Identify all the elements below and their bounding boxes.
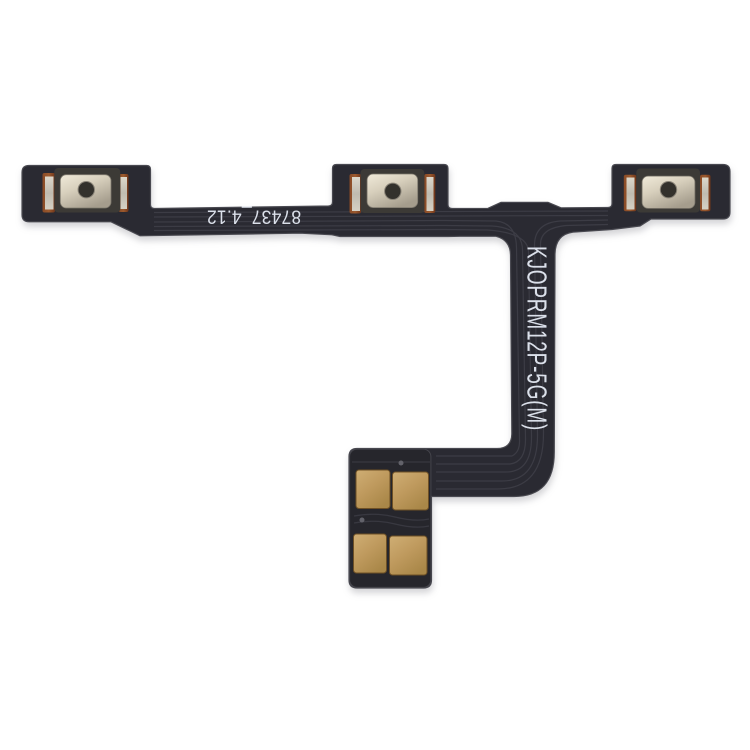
svg-text:87437_4.12: 87437_4.12 <box>207 205 301 228</box>
svg-text:KJOPRM12P-5G(M): KJOPRM12P-5G(M) <box>521 246 551 431</box>
